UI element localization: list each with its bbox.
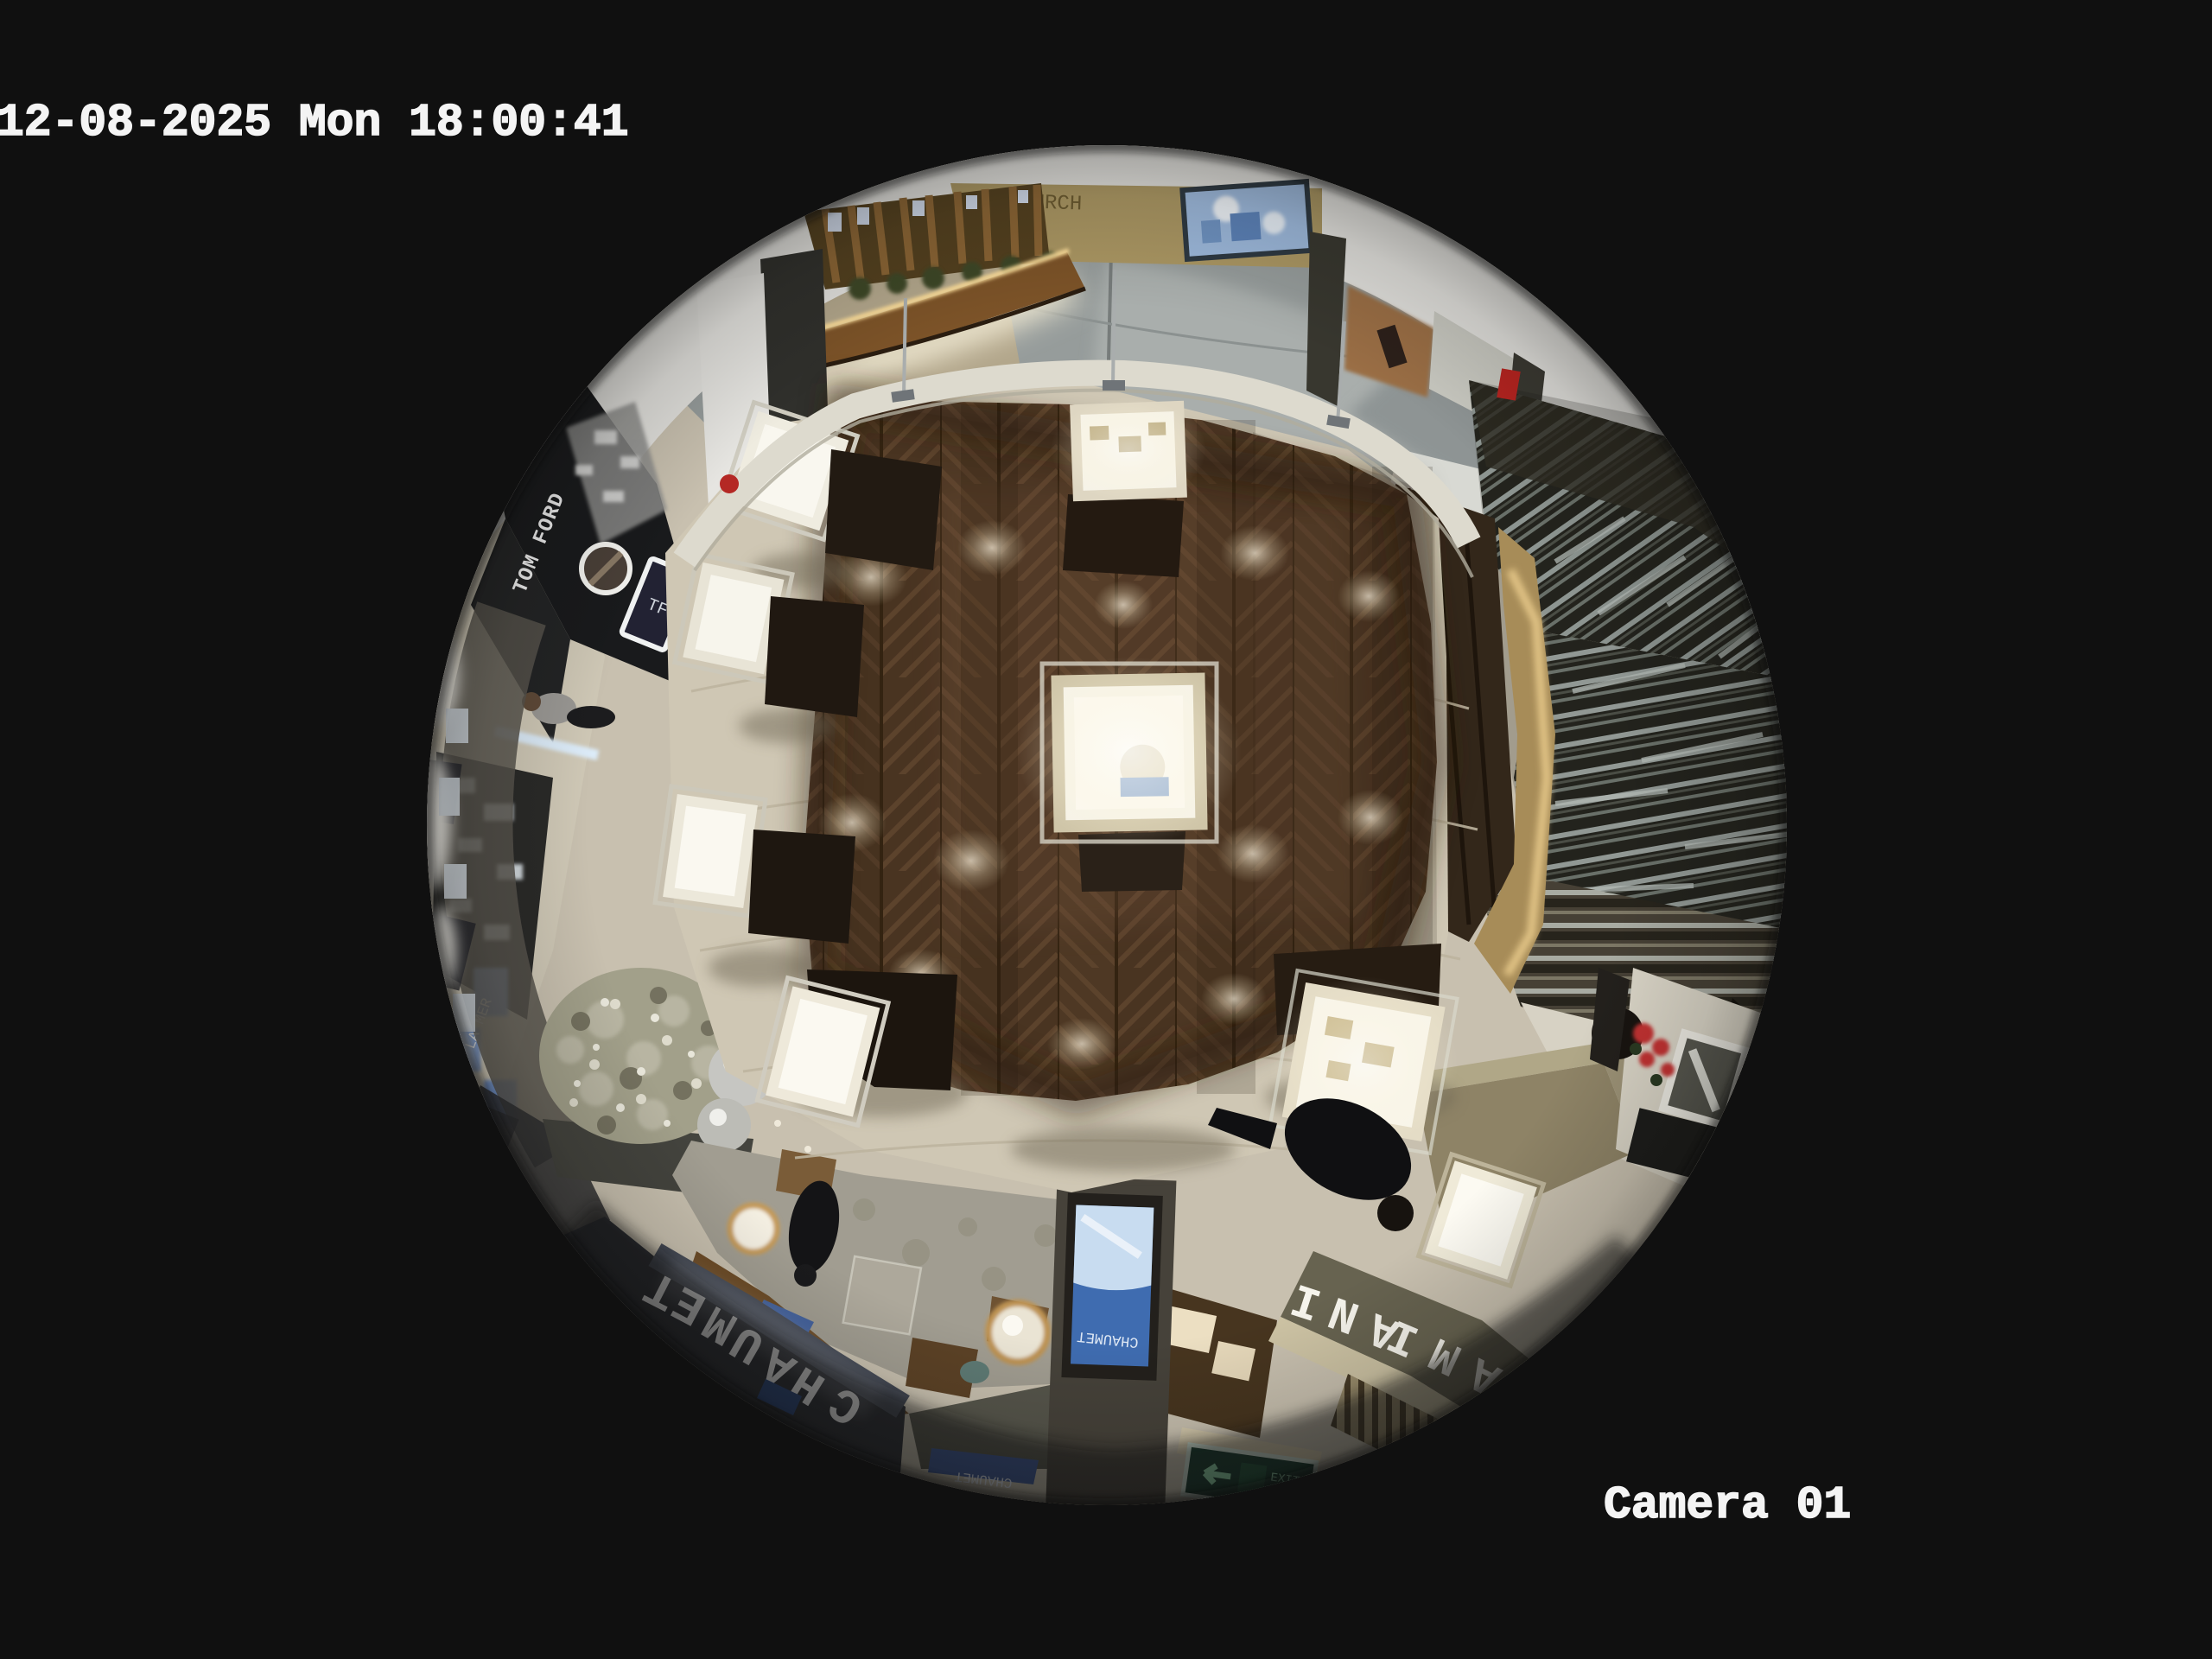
svg-text:12-08-2025 Mon 18:00:41: 12-08-2025 Mon 18:00:41 [0, 97, 629, 149]
svg-text:Camera 01: Camera 01 [1604, 1479, 1851, 1531]
